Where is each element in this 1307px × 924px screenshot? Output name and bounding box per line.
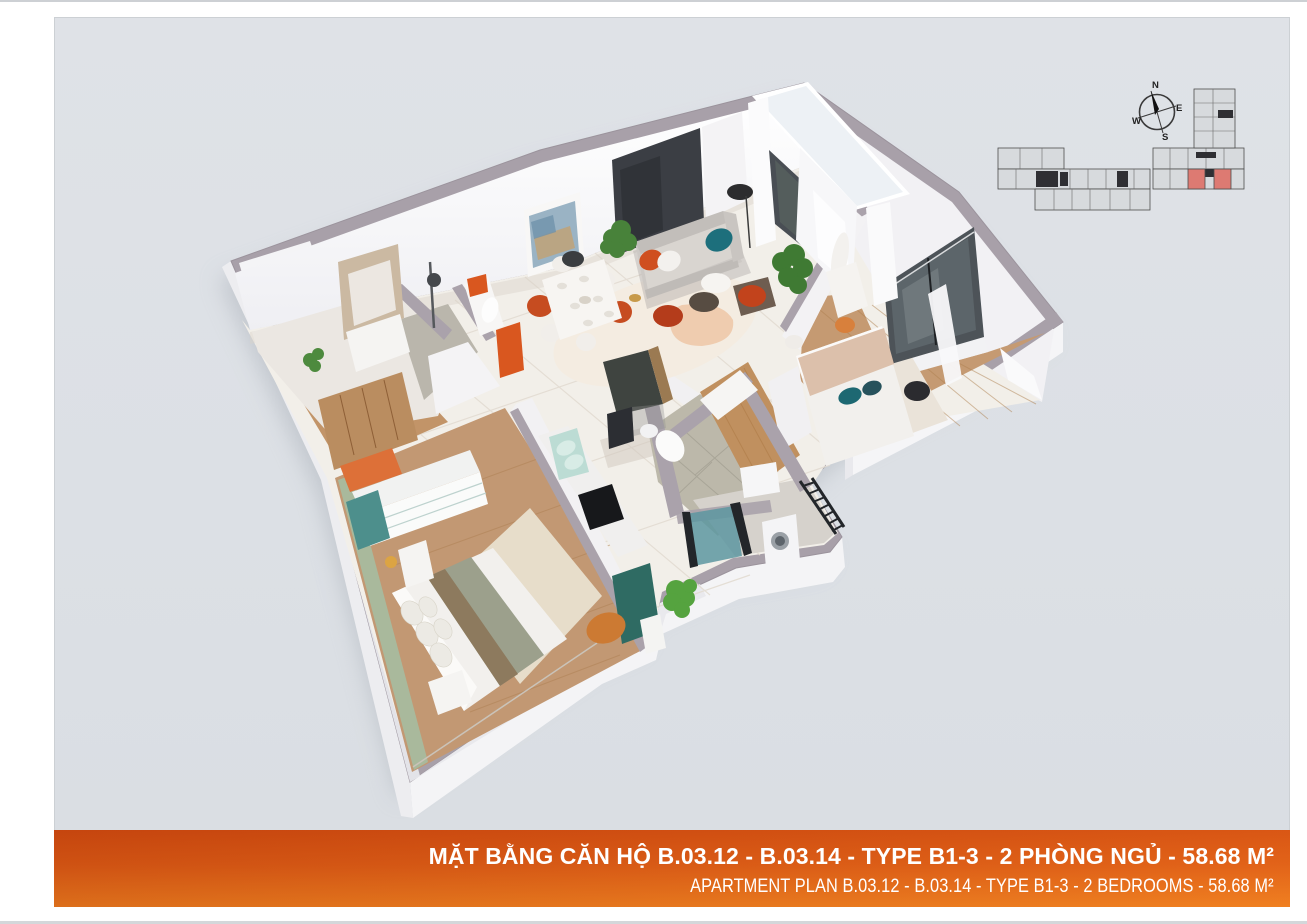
svg-text:N: N [1152, 80, 1159, 91]
svg-text:W: W [1132, 116, 1141, 127]
svg-text:S: S [1162, 132, 1168, 143]
svg-text:E: E [1176, 103, 1182, 114]
